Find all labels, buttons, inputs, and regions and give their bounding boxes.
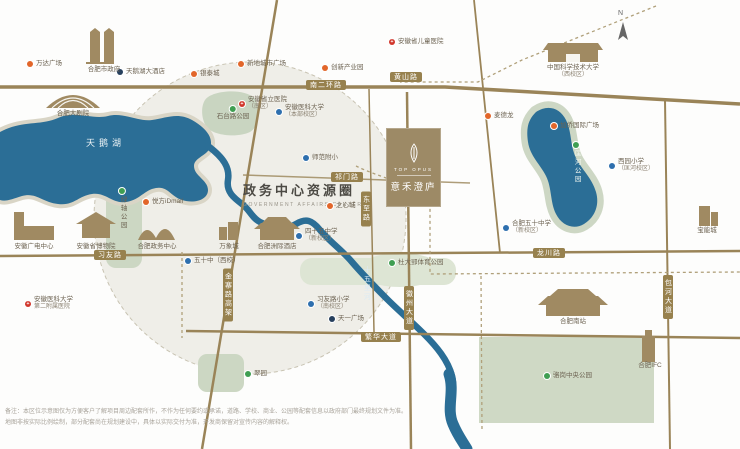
poi-building: 合肥洲际酒店 (258, 243, 297, 251)
poi-label: 新地城市广场 (247, 60, 286, 68)
poi-mall: 万达广场 (27, 60, 62, 68)
park-dot-icon (119, 188, 125, 194)
park-dot-icon (573, 142, 579, 148)
road-badge: 徽州大道 (404, 286, 414, 330)
grand-theater-icon (46, 95, 100, 108)
park-dot-icon (245, 371, 251, 377)
poi-label: 匡河公园 (572, 150, 580, 184)
swan-lake (0, 115, 211, 204)
road-badge: 南二环路 (306, 80, 346, 90)
zone-title-cn: 政务中心资源圈 (243, 180, 363, 199)
road-badge: 繁华大道 (361, 332, 401, 342)
poi-label: 绿轴公园 (118, 196, 126, 230)
poi-label: 合肥洲际酒店 (258, 243, 297, 251)
school-dot-icon (185, 258, 191, 264)
school-dot-icon (296, 233, 302, 239)
poi-mall: 加侨国际广场 (551, 122, 599, 130)
poi-school: 四十五中学（新校区） (296, 228, 338, 244)
mall-dot-icon (27, 61, 33, 67)
poi-building: 合肥大剧院 (57, 110, 90, 118)
poi-river: 十五里河 (362, 266, 371, 302)
poi-label: 安徽广电中心 (15, 243, 54, 251)
poi-mall: 银泰城 (191, 70, 220, 78)
ustc-gate-icon (543, 43, 603, 62)
poi-mall: 悦方iDmall (143, 198, 183, 206)
project-card: TOP OPUS 意禾澄庐 (386, 128, 441, 207)
hospital-dot-icon: + (389, 39, 395, 45)
city-hall-towers-icon (86, 28, 114, 64)
mall-dot-icon (485, 113, 491, 119)
road-badge: 祁门路 (331, 172, 363, 182)
baoneng-tower-icon (699, 206, 718, 226)
poi-building: 中国科学技术大学（西校区） (547, 64, 599, 80)
poi-label: 安徽医科大学（本部校区） (285, 104, 324, 120)
road-badge: 金寨路高架 (223, 269, 233, 322)
road-badge: 包河大道 (663, 275, 673, 319)
poi-label: 安徽省儿童医院 (398, 38, 444, 46)
poi-label: 天鹅湖大酒店 (126, 68, 165, 76)
mall-dot-icon (322, 65, 328, 71)
school-dot-icon (303, 155, 309, 161)
poi-label: 中国科学技术大学（西校区） (547, 64, 599, 80)
poi-building: 合肥南站 (560, 318, 586, 326)
poi-label: 宝能城 (697, 227, 717, 235)
ifc-tower-icon (642, 330, 655, 362)
poi-label: 万达广场 (36, 60, 62, 68)
poi-building: 安徽广电中心 (15, 243, 54, 251)
poi-label: 合肥南站 (560, 318, 586, 326)
poi-hospital: +安徽医科大学第二附属医院 (25, 296, 73, 312)
school-dot-icon (609, 163, 615, 169)
park-dot-icon (389, 260, 395, 266)
poi-school: 师范附小 (303, 154, 338, 162)
park-dot-icon (544, 373, 550, 379)
project-name-en: TOP OPUS (394, 167, 433, 172)
poi-park: 绿轴公园 (118, 188, 126, 230)
disclaimer-line: 地图非按实际比例绘制，部分配套尚在规划建设中，具体以实际交付为准，开发商保留对宣… (5, 418, 407, 429)
poi-building: 合肥政务中心 (138, 243, 177, 251)
compass-north-label: N (618, 10, 623, 17)
poi-park: 翠园 (245, 370, 267, 378)
poi-building: 万象城 (219, 243, 239, 251)
poi-label: 安徽省立医院（南区） (248, 96, 287, 112)
poi-park: 杜大郢体育公园 (389, 259, 444, 267)
poi-hospital: +安徽省儿童医院 (389, 38, 444, 46)
poi-label: 杜大郢体育公园 (398, 259, 444, 267)
mall-dot-icon (191, 71, 197, 77)
poi-label: 麦德龙 (494, 112, 514, 120)
poi-mall: 之心城 (327, 202, 356, 210)
school-dot-icon (503, 225, 509, 231)
park-dot-icon (230, 106, 236, 112)
poi-label: 四十五中学（新校区） (305, 228, 338, 244)
poi-label: 银泰城 (200, 70, 220, 78)
poi-mall: 麦德龙 (485, 112, 514, 120)
card-divider (397, 175, 431, 176)
project-name-cn: 意禾澄庐 (390, 179, 436, 193)
hospital-dot-icon: + (25, 301, 31, 307)
poi-school: 习友路小学（南校区） (308, 296, 350, 312)
poi-school: 西园小学（匡河校区） (609, 158, 654, 174)
mall-dot-icon (238, 61, 244, 67)
poi-label: 合肥大剧院 (57, 110, 90, 118)
broadcast-center-icon (14, 212, 54, 240)
disclaimer: 备注：本区位示意图仅为方便客户了解项目周边配套所作，不作为任何要约或承诺，道路、… (5, 407, 407, 429)
poi-label: 合肥IFC (638, 362, 661, 370)
poi-label: 创新产业园 (331, 64, 364, 72)
road-badge: 龙川路 (533, 248, 565, 258)
poi-label: 十五里河 (362, 266, 371, 302)
poi-label: 石台路公园 (217, 113, 250, 121)
poi-school: 五十中（西校） (185, 257, 240, 265)
poi-label: 翠园 (254, 370, 267, 378)
poi-label: 骆岗中央公园 (553, 372, 592, 380)
poi-building: 宝能城 (697, 227, 717, 235)
poi-label: 悦方iDmall (152, 198, 183, 206)
compass-icon (618, 22, 628, 40)
swan-lake-label: 天鹅湖 (86, 136, 125, 149)
mall-dot-icon (551, 123, 557, 129)
mall-dot-icon (327, 203, 333, 209)
road-badge: 黄山路 (390, 72, 422, 82)
road-badge: 习友路 (94, 250, 126, 260)
poi-label: 安徽医科大学第二附属医院 (34, 296, 73, 312)
leaf-icon (407, 143, 421, 163)
poi-label: 习友路小学（南校区） (317, 296, 350, 312)
disclaimer-line: 备注：本区位示意图仅为方便客户了解项目周边配套所作，不作为任何要约或承诺，道路、… (5, 407, 407, 418)
poi-mall: 新地城市广场 (238, 60, 286, 68)
poi-label: 合肥市政府 (88, 66, 121, 74)
hotel-dot-icon (329, 316, 335, 322)
poi-building: 合肥IFC (638, 362, 661, 370)
poi-hotel: 天一广场 (329, 315, 364, 323)
poi-label: 天一广场 (338, 315, 364, 323)
poi-park: 匡河公园 (572, 142, 580, 184)
poi-label: 五十中（西校） (194, 257, 240, 265)
location-map: N 天鹅湖 政务中心资源圈 GOVERNMENT AFFAIRS CENTER … (0, 0, 740, 449)
poi-mall: 创新产业园 (322, 64, 364, 72)
poi-label: 万象城 (219, 243, 239, 251)
road-northeast-vertical (474, 0, 500, 253)
poi-label: 加侨国际广场 (560, 122, 599, 130)
poi-label: 合肥政务中心 (138, 243, 177, 251)
mall-dot-icon (143, 199, 149, 205)
road-badge: 东至路 (361, 192, 371, 227)
poi-label: 之心城 (336, 202, 356, 210)
poi-label: 合肥五十中学（新校区） (512, 220, 551, 236)
poi-label: 师范附小 (312, 154, 338, 162)
poi-park: 骆岗中央公园 (544, 372, 592, 380)
poi-park: 石台路公园 (217, 106, 250, 121)
poi-school: 合肥五十中学（新校区） (503, 220, 551, 236)
hefei-south-station-icon (538, 289, 608, 316)
poi-label: 西园小学（匡河校区） (618, 158, 654, 174)
poi-hotel: 天鹅湖大酒店 (117, 68, 165, 76)
school-dot-icon (308, 301, 314, 307)
poi-building: 合肥市政府 (88, 66, 121, 74)
